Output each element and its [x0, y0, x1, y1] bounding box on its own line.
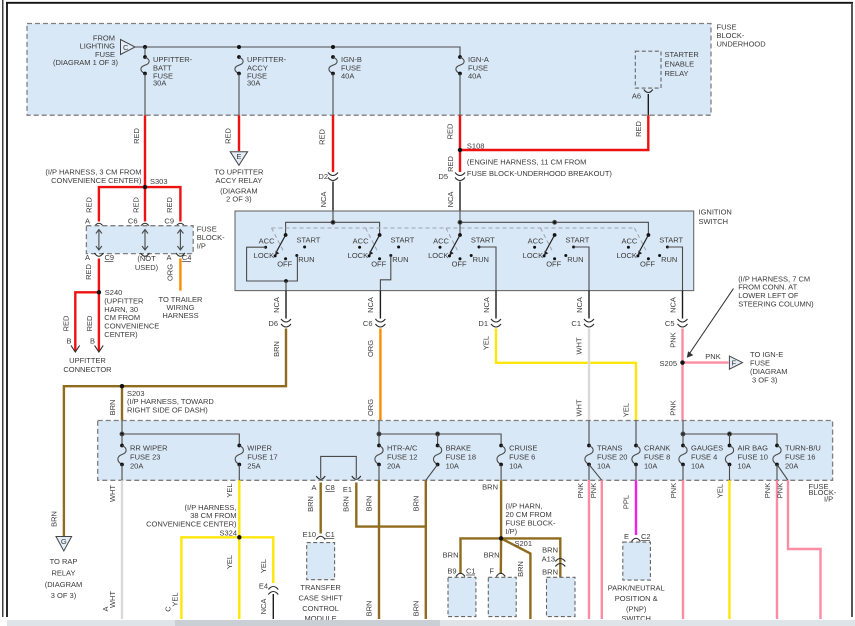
svg-text:CONTROL: CONTROL — [302, 604, 339, 613]
svg-text:C: C — [123, 43, 129, 52]
svg-text:FUSE 20: FUSE 20 — [597, 453, 627, 462]
svg-text:RED: RED — [84, 197, 93, 213]
svg-text:RUN: RUN — [298, 255, 314, 264]
svg-text:START: START — [565, 235, 589, 244]
svg-text:START: START — [659, 235, 683, 244]
svg-text:RED: RED — [446, 123, 455, 139]
svg-text:E: E — [624, 532, 629, 541]
svg-text:OFF: OFF — [452, 260, 467, 269]
svg-text:FUSE: FUSE — [717, 22, 737, 31]
svg-text:TO RAP: TO RAP — [50, 557, 78, 566]
svg-text:2 OF 3): 2 OF 3) — [226, 194, 252, 203]
svg-text:LOCK: LOCK — [348, 251, 368, 260]
svg-text:NCA: NCA — [272, 297, 281, 313]
svg-text:10A: 10A — [446, 462, 459, 471]
svg-text:20A: 20A — [130, 462, 143, 471]
svg-text:30A: 30A — [247, 79, 260, 88]
svg-text:YEL: YEL — [225, 483, 234, 497]
svg-text:ACC: ACC — [528, 236, 544, 245]
svg-text:NCA: NCA — [446, 192, 455, 208]
svg-text:PARK/NEUTRAL: PARK/NEUTRAL — [608, 584, 665, 593]
svg-text:LOCK: LOCK — [616, 251, 636, 260]
svg-text:C4: C4 — [182, 253, 192, 262]
svg-text:FUSE 23: FUSE 23 — [130, 453, 160, 462]
svg-text:(DIAGRAM 1 OF 3): (DIAGRAM 1 OF 3) — [53, 58, 119, 67]
svg-text:CONVENIENCE CENTER): CONVENIENCE CENTER) — [51, 176, 142, 185]
svg-text:BRN: BRN — [341, 496, 350, 512]
svg-text:FUSE 17: FUSE 17 — [247, 453, 277, 462]
svg-text:PNK: PNK — [763, 483, 772, 498]
svg-text:HTR-A/C: HTR-A/C — [387, 444, 418, 453]
svg-text:IGNITION: IGNITION — [699, 207, 732, 216]
svg-text:E4: E4 — [259, 582, 268, 591]
svg-text:A: A — [85, 253, 90, 262]
svg-text:TURN-B/U: TURN-B/U — [785, 444, 821, 453]
svg-text:RED: RED — [446, 156, 455, 172]
svg-text:STARTER: STARTER — [665, 50, 700, 59]
svg-text:C8: C8 — [325, 483, 335, 492]
svg-text:40A: 40A — [341, 71, 354, 80]
svg-text:OFF: OFF — [277, 260, 292, 269]
svg-text:START: START — [390, 235, 414, 244]
svg-text:RUN: RUN — [392, 255, 408, 264]
svg-text:FUSE 6: FUSE 6 — [509, 453, 535, 462]
svg-text:10A: 10A — [691, 462, 704, 471]
svg-text:C2: C2 — [641, 532, 651, 541]
svg-text:PNK: PNK — [775, 483, 784, 498]
svg-text:NCA: NCA — [366, 297, 375, 313]
svg-text:PNK: PNK — [589, 483, 598, 498]
svg-text:BRN: BRN — [108, 400, 117, 416]
svg-text:YEL: YEL — [171, 592, 180, 606]
svg-text:D6: D6 — [268, 319, 278, 328]
svg-text:(DIAGRAM: (DIAGRAM — [45, 580, 83, 589]
svg-text:BRN: BRN — [443, 550, 459, 559]
svg-text:PNK: PNK — [668, 332, 677, 347]
svg-text:PNK: PNK — [705, 352, 720, 361]
svg-text:TRANS: TRANS — [597, 444, 622, 453]
svg-text:UNDERHOOD: UNDERHOOD — [717, 39, 767, 48]
svg-text:BRN: BRN — [412, 496, 421, 512]
svg-text:B: B — [66, 337, 71, 346]
svg-text:ENABLE: ENABLE — [665, 60, 695, 69]
svg-text:NCA: NCA — [319, 192, 328, 208]
svg-text:A: A — [166, 253, 171, 262]
svg-text:40A: 40A — [468, 71, 481, 80]
svg-text:S201: S201 — [515, 539, 533, 548]
svg-text:NCA: NCA — [259, 599, 268, 615]
svg-text:PNK: PNK — [669, 483, 678, 498]
svg-text:RED: RED — [62, 315, 71, 331]
svg-text:RED: RED — [132, 197, 141, 213]
svg-text:CONNECTOR: CONNECTOR — [63, 365, 112, 374]
svg-text:A: A — [311, 483, 316, 492]
svg-text:C9: C9 — [164, 217, 174, 226]
svg-text:BRAKE: BRAKE — [446, 444, 471, 453]
svg-text:YEL: YEL — [715, 484, 724, 498]
svg-text:PNK: PNK — [576, 483, 585, 498]
svg-text:RUN: RUN — [661, 255, 677, 264]
svg-text:WHT: WHT — [575, 399, 584, 416]
svg-text:RIGHT SIDE OF DASH): RIGHT SIDE OF DASH) — [127, 405, 208, 414]
svg-text:(PNP): (PNP) — [626, 605, 647, 614]
svg-text:YEL: YEL — [259, 559, 268, 573]
svg-text:RUN: RUN — [473, 255, 489, 264]
svg-text:CONVENIENCE CENTER): CONVENIENCE CENTER) — [146, 519, 237, 528]
svg-text:OFF: OFF — [546, 260, 561, 269]
svg-text:PPL: PPL — [622, 495, 631, 509]
svg-text:RELAY: RELAY — [665, 69, 689, 78]
svg-text:C6: C6 — [128, 217, 138, 226]
svg-text:ACC: ACC — [621, 236, 637, 245]
svg-text:A13: A13 — [542, 555, 555, 564]
svg-text:AIR BAG: AIR BAG — [738, 444, 769, 453]
svg-text:F: F — [732, 358, 737, 367]
svg-text:I/P): I/P) — [506, 527, 518, 536]
svg-text:E1: E1 — [343, 485, 352, 494]
svg-text:G: G — [61, 537, 67, 546]
svg-text:10A: 10A — [644, 462, 657, 471]
svg-text:CASE SHIFT: CASE SHIFT — [299, 594, 344, 603]
svg-text:USED): USED) — [135, 263, 159, 272]
svg-text:RELAY: RELAY — [51, 568, 75, 577]
svg-text:3 OF 3): 3 OF 3) — [752, 376, 778, 385]
svg-text:YEL: YEL — [225, 555, 234, 569]
svg-text:BRN: BRN — [272, 341, 281, 357]
svg-text:NCA: NCA — [482, 297, 491, 313]
svg-text:D1: D1 — [478, 319, 488, 328]
svg-text:NCA: NCA — [668, 297, 677, 313]
svg-text:START: START — [296, 235, 320, 244]
svg-text:C5: C5 — [665, 319, 675, 328]
svg-text:F: F — [489, 567, 494, 576]
svg-text:OFF: OFF — [640, 260, 655, 269]
svg-text:BRN: BRN — [516, 561, 525, 577]
svg-text:ORG: ORG — [166, 264, 175, 281]
svg-text:YEL: YEL — [622, 403, 631, 417]
svg-text:LOCK: LOCK — [254, 251, 274, 260]
svg-text:BRN: BRN — [484, 550, 500, 559]
svg-text:BRN: BRN — [412, 601, 421, 617]
svg-text:ACC: ACC — [433, 236, 449, 245]
svg-text:ORG: ORG — [366, 399, 375, 416]
svg-text:C1: C1 — [571, 319, 581, 328]
svg-text:OFF: OFF — [371, 260, 386, 269]
svg-text:HARNESS: HARNESS — [162, 311, 198, 320]
svg-text:LOCK: LOCK — [428, 251, 448, 260]
svg-text:CENTER): CENTER) — [104, 330, 138, 339]
svg-text:STEERING COLUMN): STEERING COLUMN) — [738, 299, 814, 308]
svg-text:C1: C1 — [466, 567, 476, 576]
svg-text:FUSE 8: FUSE 8 — [644, 453, 670, 462]
svg-text:RED: RED — [85, 315, 94, 331]
svg-text:D5: D5 — [438, 172, 448, 181]
svg-text:FUSE 4: FUSE 4 — [691, 453, 717, 462]
svg-text:RED: RED — [224, 128, 233, 144]
svg-text:B: B — [90, 337, 95, 346]
svg-text:FUSE 10: FUSE 10 — [738, 453, 768, 462]
svg-text:RED: RED — [132, 128, 141, 144]
svg-text:25A: 25A — [247, 462, 260, 471]
svg-text:BRN: BRN — [306, 496, 315, 512]
svg-text:B9: B9 — [447, 567, 456, 576]
svg-text:WHT: WHT — [108, 591, 117, 608]
svg-text:GAUGES: GAUGES — [691, 444, 723, 453]
svg-text:(ENGINE HARNESS, 11 CM FROM: (ENGINE HARNESS, 11 CM FROM — [467, 158, 586, 167]
svg-text:NCA: NCA — [575, 297, 584, 313]
svg-text:CRANK: CRANK — [644, 444, 670, 453]
svg-text:RUN: RUN — [567, 255, 583, 264]
svg-text:WIPER: WIPER — [247, 444, 272, 453]
svg-text:WHT: WHT — [575, 337, 584, 354]
svg-text:20A: 20A — [387, 462, 400, 471]
svg-text:E: E — [236, 152, 241, 161]
svg-text:E10: E10 — [303, 530, 316, 539]
svg-text:FUSE 18: FUSE 18 — [446, 453, 476, 462]
svg-text:(NOT: (NOT — [137, 254, 156, 263]
svg-text:I/P: I/P — [197, 241, 206, 250]
svg-text:FUSE BLOCK-UNDERHOOD BREAKOUT): FUSE BLOCK-UNDERHOOD BREAKOUT) — [467, 169, 613, 178]
svg-text:FUSE 16: FUSE 16 — [785, 453, 815, 462]
svg-text:BRN: BRN — [542, 546, 558, 555]
svg-text:C9: C9 — [105, 253, 115, 262]
svg-text:RED: RED — [634, 121, 643, 137]
svg-text:RED: RED — [318, 129, 327, 145]
svg-text:PNK: PNK — [668, 400, 677, 415]
svg-text:CRUISE: CRUISE — [509, 444, 537, 453]
svg-text:C1: C1 — [325, 530, 335, 539]
svg-text:10A: 10A — [509, 462, 522, 471]
svg-text:A: A — [85, 217, 90, 226]
svg-text:RED: RED — [84, 264, 93, 280]
svg-text:SWITCH: SWITCH — [699, 217, 729, 226]
svg-text:ACC: ACC — [259, 236, 275, 245]
svg-text:RR WIPER: RR WIPER — [130, 444, 168, 453]
svg-text:BRN: BRN — [365, 601, 374, 617]
svg-text:BRN: BRN — [542, 568, 558, 577]
svg-text:START: START — [471, 235, 495, 244]
svg-text:A6: A6 — [632, 92, 641, 101]
svg-text:TRANSFER: TRANSFER — [300, 583, 341, 592]
svg-text:20A: 20A — [785, 462, 798, 471]
svg-text:ORG: ORG — [366, 340, 375, 357]
svg-text:10A: 10A — [738, 462, 751, 471]
svg-text:WHT: WHT — [108, 485, 117, 502]
svg-text:ACCY RELAY: ACCY RELAY — [215, 176, 262, 185]
svg-text:D2: D2 — [318, 172, 328, 181]
svg-text:S303: S303 — [150, 177, 168, 186]
svg-text:C6: C6 — [363, 319, 373, 328]
svg-text:YEL: YEL — [482, 336, 491, 350]
svg-text:30A: 30A — [153, 79, 166, 88]
svg-text:FUSE 12: FUSE 12 — [387, 453, 417, 462]
svg-text:LOCK: LOCK — [523, 251, 543, 260]
svg-text:BRN: BRN — [482, 483, 498, 492]
svg-text:ACC: ACC — [353, 236, 369, 245]
svg-text:10A: 10A — [597, 462, 610, 471]
svg-text:3 OF 3): 3 OF 3) — [51, 591, 77, 600]
svg-text:POSITION &: POSITION & — [615, 594, 658, 603]
svg-text:S205: S205 — [659, 359, 677, 368]
svg-text:RED: RED — [165, 197, 174, 213]
svg-text:BRN: BRN — [50, 511, 59, 527]
svg-text:UPFITTER: UPFITTER — [69, 356, 106, 365]
svg-text:BRN: BRN — [365, 496, 374, 512]
svg-text:I/P: I/P — [824, 494, 833, 503]
